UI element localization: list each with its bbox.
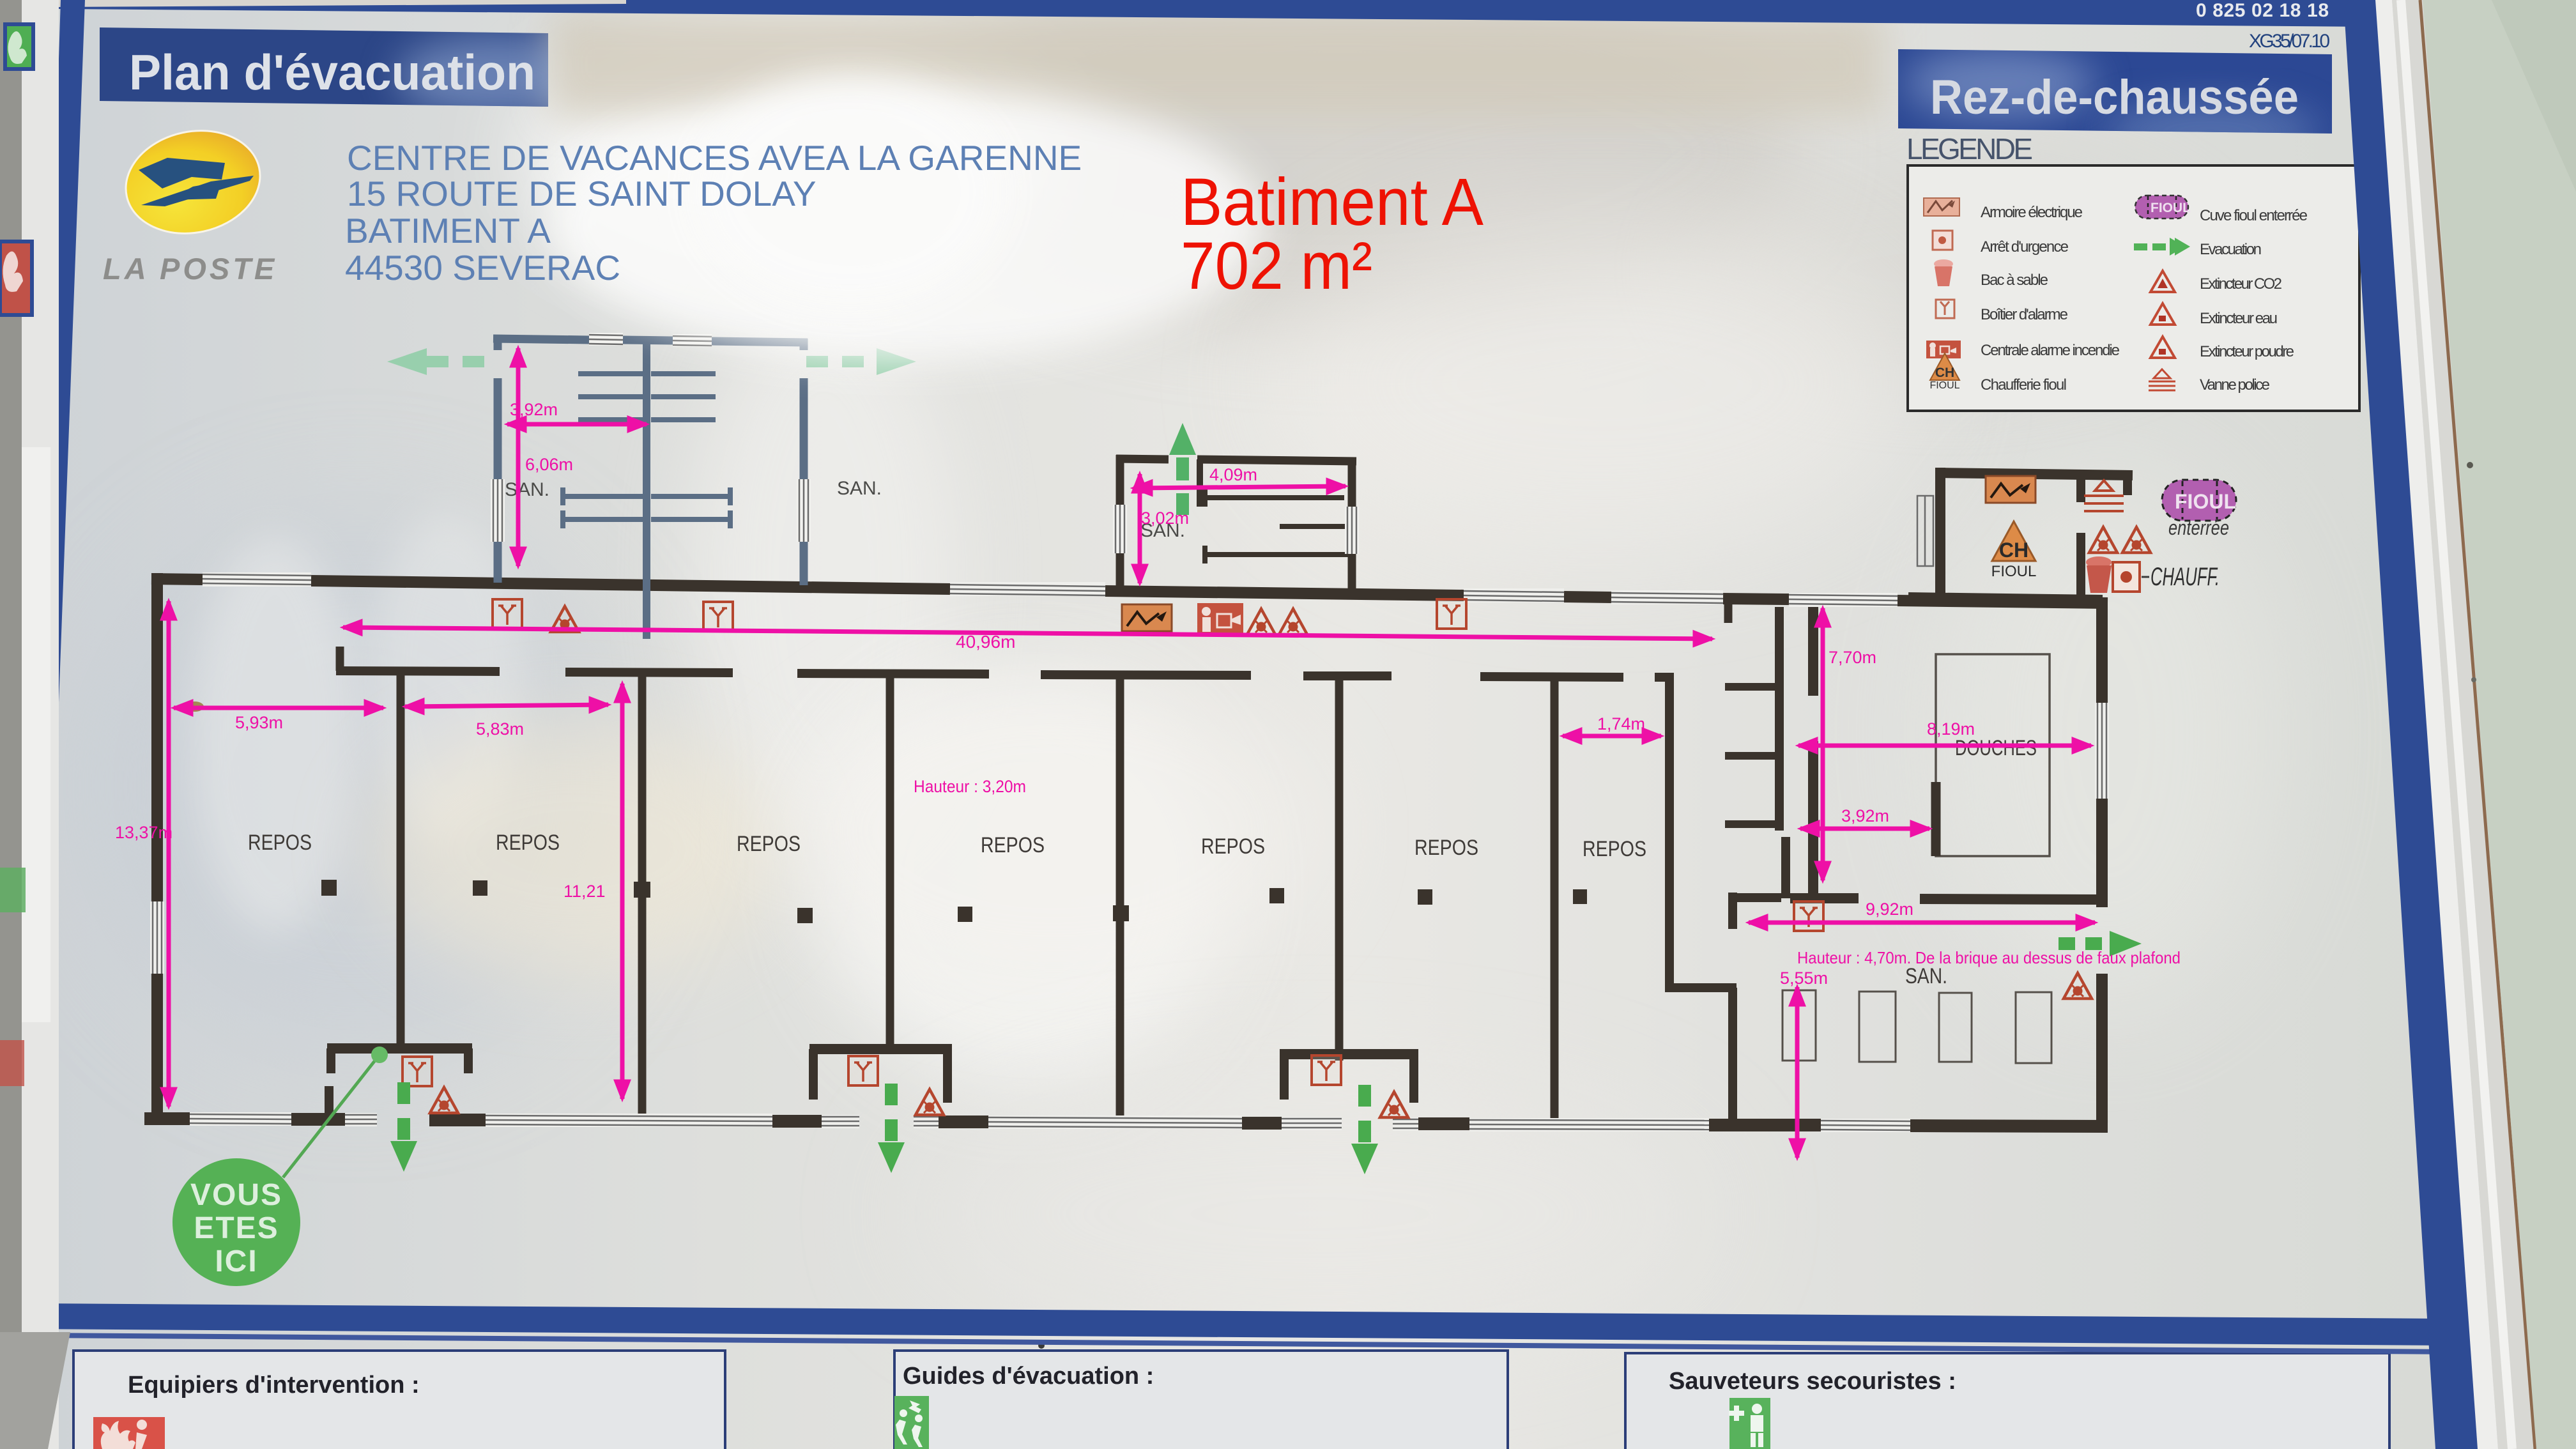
svg-text:3,02m: 3,02m [1141,509,1189,528]
svg-text:44530 SEVERAC: 44530 SEVERAC [345,248,620,287]
svg-text:REPOS: REPOS [1414,836,1478,860]
svg-text:LEGENDE: LEGENDE [1906,132,2033,165]
svg-text:40,96m: 40,96m [956,632,1015,652]
svg-text:Vanne police: Vanne police [2200,376,2270,394]
svg-text:Plan d'évacuation: Plan d'évacuation [129,44,535,100]
svg-text:FIOUL: FIOUL [1929,380,1959,391]
svg-text:FIOUL: FIOUL [1991,563,2037,580]
svg-text:Extincteur poudre: Extincteur poudre [2200,343,2294,360]
svg-text:SAN.: SAN. [505,479,549,500]
svg-text:LA POSTE: LA POSTE [103,252,277,286]
svg-text:8,19m: 8,19m [1927,719,1975,739]
svg-text:REPOS: REPOS [1583,837,1646,861]
svg-text:Evacuation: Evacuation [2200,241,2262,258]
svg-text:DOUCHES: DOUCHES [1955,736,2037,760]
svg-text:5,93m: 5,93m [235,713,283,732]
svg-text:Sauveteurs secouristes :: Sauveteurs secouristes : [1669,1368,1956,1395]
svg-text:Equipiers d'intervention :: Equipiers d'intervention : [128,1372,420,1399]
svg-text:Arrêt d'urgence: Arrêt d'urgence [1981,238,2069,256]
svg-text:Chaufferie fioul: Chaufferie fioul [1981,376,2067,394]
svg-text:15 ROUTE DE SAINT DOLAY: 15 ROUTE DE SAINT DOLAY [347,174,816,213]
svg-text:REPOS: REPOS [737,832,801,856]
svg-text:5,83m: 5,83m [476,719,524,739]
svg-text:enterrée: enterrée [2168,516,2229,539]
svg-text:ETES: ETES [194,1211,279,1245]
svg-text:Extincteur eau: Extincteur eau [2200,310,2278,327]
svg-text:SAN.: SAN. [837,478,882,499]
svg-text:Armoire électrique: Armoire électrique [1981,204,2083,221]
svg-text:CHAUFF.: CHAUFF. [2150,563,2219,591]
svg-text:7,70m: 7,70m [1828,648,1876,667]
svg-text:1,74m: 1,74m [1597,714,1645,733]
svg-text:3,92m: 3,92m [1841,806,1889,825]
svg-text:11,21: 11,21 [563,882,606,901]
svg-text:CH: CH [1935,365,1954,380]
svg-text:4,09m: 4,09m [1209,465,1257,484]
svg-text:FIOUL: FIOUL [2175,490,2236,513]
svg-text:FIOUL: FIOUL [2150,201,2191,215]
svg-text:Hauteur : 3,20m: Hauteur : 3,20m [914,777,1026,796]
svg-text:XG35/07.10: XG35/07.10 [2249,31,2330,52]
svg-text:VOUS: VOUS [190,1178,282,1212]
svg-text:REPOS: REPOS [981,833,1045,857]
svg-text:9,92m: 9,92m [1866,900,1913,919]
svg-text:Rez-de-chaussée: Rez-de-chaussée [1930,70,2299,125]
svg-text:Cuve fioul enterrée: Cuve fioul enterrée [2200,207,2308,224]
svg-text:CH: CH [1999,539,2028,562]
svg-text:Boîtier d'alarme: Boîtier d'alarme [1981,306,2068,323]
svg-text:BATIMENT A: BATIMENT A [345,211,551,250]
svg-text:Guides d'évacuation :: Guides d'évacuation : [903,1363,1154,1390]
svg-text:SAN.: SAN. [1905,964,1947,988]
svg-text:5,55m: 5,55m [1780,969,1828,988]
svg-text:ICI: ICI [215,1245,257,1278]
svg-text:REPOS: REPOS [248,831,312,855]
svg-text:0 825 02 18 18: 0 825 02 18 18 [2196,0,2329,21]
svg-text:REPOS: REPOS [1201,834,1265,859]
svg-text:REPOS: REPOS [496,831,560,855]
svg-text:Hauteur : 4,70m. De la brique: Hauteur : 4,70m. De la brique au dessus … [1797,948,2181,967]
svg-text:13,37m: 13,37m [115,823,172,842]
svg-text:CENTRE DE VACANCES AVEA LA GAR: CENTRE DE VACANCES AVEA LA GARENNE [347,138,1082,178]
svg-text:6,06m: 6,06m [525,455,573,474]
svg-text:Centrale alarme incendie: Centrale alarme incendie [1981,342,2120,359]
svg-text:3,92m: 3,92m [510,400,558,419]
svg-text:Bac à sable: Bac à sable [1981,272,2048,289]
svg-text:702 m²: 702 m² [1181,229,1372,303]
svg-text:Extincteur CO2: Extincteur CO2 [2200,275,2282,293]
